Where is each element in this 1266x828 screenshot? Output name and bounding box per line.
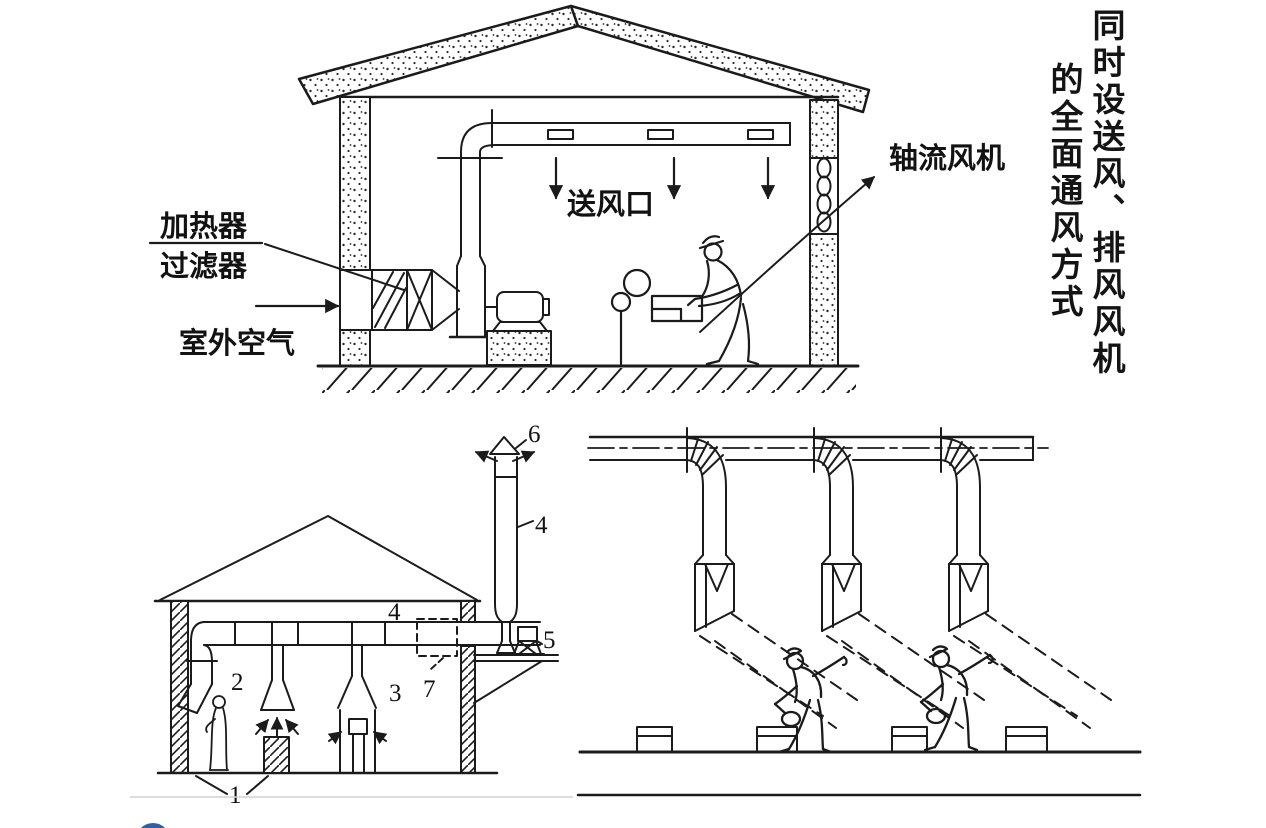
workbench-boxes bbox=[637, 727, 1047, 752]
figure-caption-column-left: 的全面通风方式 bbox=[1040, 62, 1088, 321]
label-axial-fan: 轴流风机 bbox=[889, 142, 1005, 175]
callout-6: 6 bbox=[528, 421, 541, 448]
workbench-machine bbox=[612, 270, 702, 364]
axial-fan-leader-arrow bbox=[700, 177, 874, 332]
supply-fan-duct bbox=[438, 110, 790, 337]
rain-cap bbox=[490, 437, 519, 454]
outdoor-platform bbox=[474, 655, 558, 703]
top-diagram: 加热器 过滤器 室外空气 送风口 轴流风机 bbox=[150, 6, 1005, 393]
floor-hatch bbox=[322, 368, 856, 393]
label-supply-outlet: 送风口 bbox=[567, 188, 654, 221]
figure-caption-column-right: 同时设送风、排风风机 bbox=[1082, 8, 1130, 378]
label-filter: 过滤器 bbox=[160, 250, 248, 283]
heater-filter-leader bbox=[265, 244, 404, 290]
callout-4-duct: 4 bbox=[388, 599, 401, 626]
bottom-left-diagram: 1 2 3 4 4 5 6 7 bbox=[155, 421, 558, 809]
callout-3: 3 bbox=[389, 680, 402, 707]
logo-badge bbox=[136, 823, 170, 828]
ventilation-figure: 加热器 过滤器 室外空气 送风口 轴流风机 bbox=[0, 0, 1266, 828]
heater-filter-unit bbox=[340, 270, 459, 330]
callout-5: 5 bbox=[543, 627, 556, 654]
callout-7: 7 bbox=[423, 676, 436, 703]
callout-2: 2 bbox=[231, 669, 244, 696]
overhead-main-duct bbox=[588, 437, 1048, 460]
label-heater: 加热器 bbox=[160, 210, 248, 243]
axial-fan-symbol bbox=[810, 158, 838, 234]
label-outdoor-air: 室外空气 bbox=[179, 326, 295, 360]
small-worker-figure bbox=[206, 696, 228, 770]
exhaust-main-duct bbox=[204, 622, 540, 645]
callout-4-stack: 4 bbox=[535, 512, 548, 539]
bottom-right-diagram bbox=[578, 428, 1140, 795]
exhaust-stack bbox=[476, 437, 534, 653]
exhaust-fan-unit bbox=[511, 627, 544, 654]
callout-1: 1 bbox=[229, 782, 242, 809]
fan-motor bbox=[485, 292, 551, 365]
